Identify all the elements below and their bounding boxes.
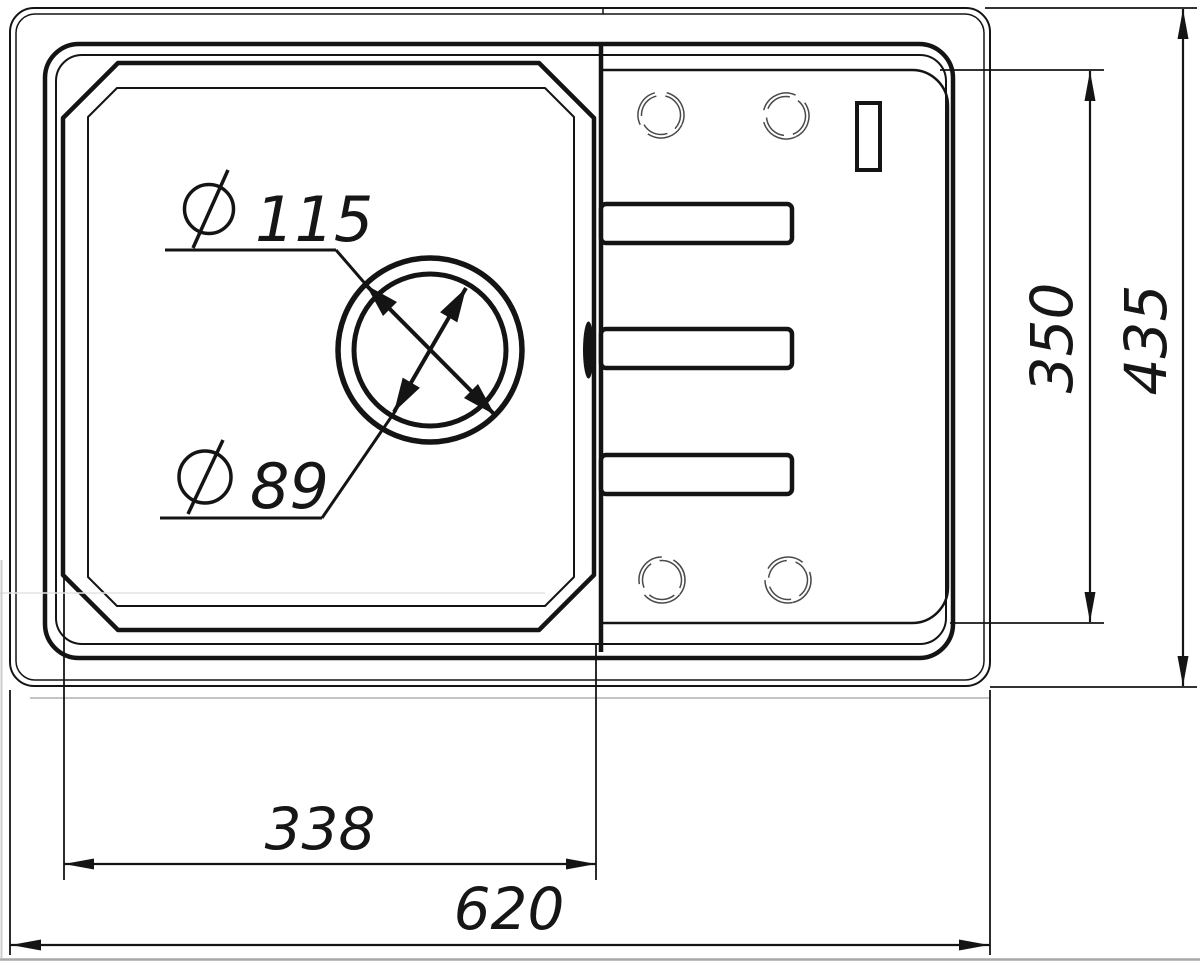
sink-outer-edge bbox=[10, 8, 990, 698]
sink-rim bbox=[45, 44, 953, 658]
arrowhead-left bbox=[64, 859, 94, 870]
dimension-drainboard-height: 350 bbox=[940, 70, 1104, 623]
arrowhead-top bbox=[1085, 71, 1096, 101]
arrowhead-left bbox=[11, 940, 41, 951]
drain-groove-bottom bbox=[601, 455, 792, 494]
knockout-slot bbox=[857, 103, 880, 170]
drain-cross-arrows bbox=[366, 285, 495, 415]
bowl-opening-edge bbox=[63, 63, 594, 630]
outer-edge-line bbox=[10, 8, 990, 686]
arrowhead-right bbox=[959, 940, 989, 951]
overflow-notch bbox=[583, 322, 594, 379]
rim-inner-line bbox=[56, 55, 946, 644]
arrowhead-top bbox=[1178, 9, 1189, 39]
arrowhead-sw bbox=[394, 378, 420, 412]
faucet-hole-top-left bbox=[630, 84, 691, 145]
dimension-overall-width: 620 bbox=[10, 690, 990, 955]
arrowhead-bottom bbox=[1085, 592, 1096, 622]
dimension-value-338: 338 bbox=[265, 795, 376, 863]
arrowhead-bottom bbox=[1178, 656, 1189, 686]
drain-outer-value: 115 bbox=[255, 183, 373, 256]
callout-leader bbox=[322, 410, 396, 518]
drainboard bbox=[601, 70, 948, 623]
bowl-floor-edge bbox=[88, 88, 574, 606]
arrowhead-ne bbox=[440, 288, 466, 322]
drain-inner-value: 89 bbox=[250, 450, 329, 523]
callout-drain-inner: 89 bbox=[160, 410, 396, 523]
faucet-hole-top-right bbox=[755, 85, 816, 146]
diameter-icon bbox=[185, 170, 234, 248]
dimension-value-350: 350 bbox=[1018, 283, 1086, 394]
callout-drain-outer: 115 bbox=[165, 170, 373, 287]
sink-technical-drawing: 115 89 338 620 350 bbox=[0, 0, 1200, 963]
dimension-bowl-width: 338 bbox=[64, 565, 596, 880]
dimension-value-435: 435 bbox=[1112, 285, 1180, 396]
diameter-icon bbox=[179, 440, 231, 514]
arrowhead-right bbox=[566, 859, 596, 870]
faucet-hole-bottom-right bbox=[761, 553, 814, 606]
dimension-value-620: 620 bbox=[454, 875, 565, 943]
faucet-hole-bottom-left bbox=[630, 548, 695, 613]
drain-groove-top bbox=[601, 204, 792, 243]
bowl bbox=[63, 63, 594, 630]
drain-groove-middle bbox=[601, 329, 792, 368]
drawing-svg: 115 89 338 620 350 bbox=[0, 0, 1200, 963]
rim-outer-line bbox=[45, 44, 953, 658]
outer-edge-inner-line bbox=[16, 14, 984, 680]
